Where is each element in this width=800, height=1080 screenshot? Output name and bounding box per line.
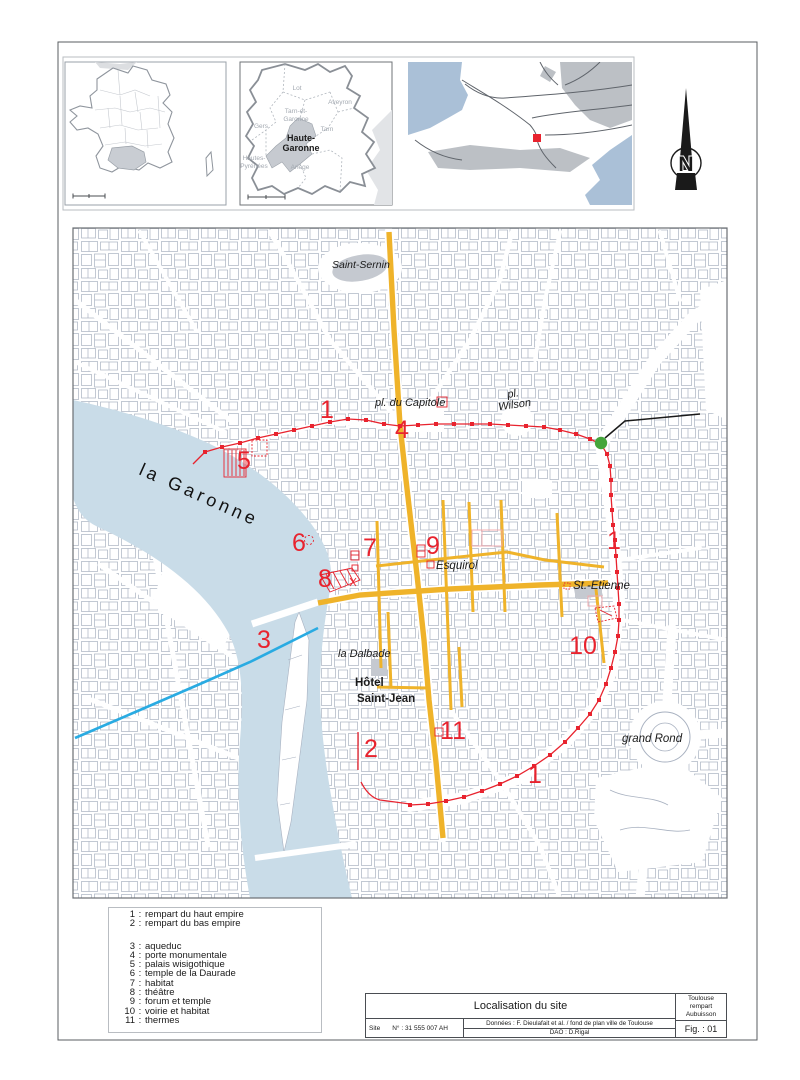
region-label-aveyron: Aveyron xyxy=(328,99,352,106)
map-label-hotel-saint-jean-2: Saint-Jean xyxy=(357,693,415,705)
site-number-8: 8 xyxy=(318,565,332,593)
region-label-gers: Gers xyxy=(254,123,269,130)
site-number-5: 5 xyxy=(237,447,251,475)
north-arrow-letter: N xyxy=(678,153,693,176)
site-number-9: 9 xyxy=(426,532,440,560)
site-number-ref: N° : 31 555 007 AH xyxy=(380,1025,460,1032)
legend-item: 11:thermes xyxy=(109,1016,321,1025)
site-label: Site xyxy=(369,1025,380,1032)
site-name: rempart Aubuisson xyxy=(676,1003,726,1019)
region-label-tarn: Tarn xyxy=(321,126,334,133)
legend-num: 2 xyxy=(109,919,135,928)
legend-box: 1:rempart du haut empire 2:rempart du ba… xyxy=(108,907,322,1033)
legend-num: 11 xyxy=(109,1016,135,1025)
region-label-tarn-garonne-1: Tarn-et- xyxy=(285,108,307,115)
city-name: Toulouse xyxy=(688,995,714,1003)
map-label-esquirol: Esquirol xyxy=(436,560,478,572)
legend-label: thermes xyxy=(145,1016,179,1025)
map-label-saint-sernin: Saint-Sernin xyxy=(332,259,390,271)
inset-physical-map xyxy=(408,62,632,205)
site-number-11: 11 xyxy=(440,717,466,745)
site-number-2: 2 xyxy=(364,735,378,763)
legend-label: rempart du bas empire xyxy=(145,919,241,928)
region-label-tarn-garonne-2: Garonne xyxy=(283,116,309,123)
figure-title: Localisation du site xyxy=(366,994,675,1019)
map-label-pl-du-capitole: pl. du Capitole xyxy=(374,397,445,409)
inset-france-map xyxy=(65,62,226,205)
inset-region-map: Lot Aveyron Tarn-et- Garonne Tarn Gers H… xyxy=(240,62,392,205)
map-label-st-etienne: St.-Etienne xyxy=(573,580,630,592)
legend-item: 2:rempart du bas empire xyxy=(109,919,321,928)
site-number-1c: 1 xyxy=(528,761,542,789)
region-label-lot: Lot xyxy=(292,85,301,92)
credits-dao: DAO : D.Rigal xyxy=(464,1029,675,1038)
toulouse-location-marker xyxy=(533,134,541,142)
site-number-10: 10 xyxy=(569,632,597,660)
site-number-6: 6 xyxy=(292,529,306,557)
region-label-hautes-pyrenees-1: Hautes- xyxy=(243,155,266,162)
site-number-4: 4 xyxy=(395,416,409,444)
region-label-hautes-pyrenees-2: Pyrénées xyxy=(240,163,268,170)
site-marker-dot xyxy=(595,437,607,449)
dalbade-church xyxy=(371,659,387,676)
site-number-1a: 1 xyxy=(320,396,334,424)
map-label-la-dalbade: la Dalbade xyxy=(338,648,391,660)
region-label-ariege: Ariège xyxy=(291,164,310,171)
north-arrow: N xyxy=(671,88,701,190)
title-block: Localisation du site Site N° : 31 555 00… xyxy=(365,993,727,1038)
credits-data-source: Données : F. Dieulafait et al. / fond de… xyxy=(464,1019,675,1029)
figure-page: Lot Aveyron Tarn-et- Garonne Tarn Gers H… xyxy=(0,0,800,1080)
map-label-hotel-saint-jean-1: Hôtel xyxy=(355,677,384,689)
figure-number: Fig. : 01 xyxy=(676,1021,726,1037)
map-label-grand-rond: grand Rond xyxy=(622,733,683,745)
site-number-1b: 1 xyxy=(607,527,621,555)
site-number-7: 7 xyxy=(363,534,377,562)
site-number-3: 3 xyxy=(257,626,271,654)
region-label-haute-garonne-2: Garonne xyxy=(282,143,319,153)
region-label-haute-garonne-1: Haute- xyxy=(287,133,315,143)
main-map: Saint-Sernin pl. du Capitole pl. Wilson … xyxy=(73,228,727,898)
